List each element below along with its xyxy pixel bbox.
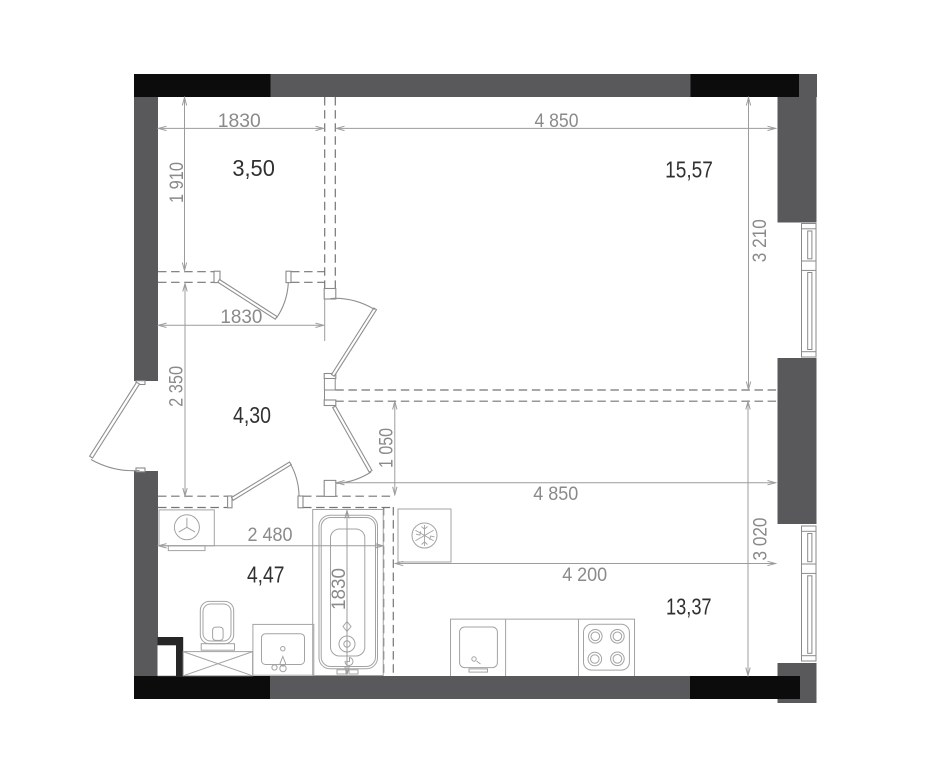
svg-text:13,37: 13,37: [666, 593, 712, 619]
svg-text:1830: 1830: [328, 568, 350, 610]
svg-text:15,57: 15,57: [665, 156, 713, 182]
svg-text:1830: 1830: [218, 110, 261, 132]
svg-text:4,30: 4,30: [233, 402, 271, 428]
svg-text:2 480: 2 480: [248, 524, 293, 546]
svg-text:2 350: 2 350: [166, 366, 188, 407]
svg-text:4 850: 4 850: [535, 110, 579, 132]
svg-text:3 020: 3 020: [749, 517, 771, 560]
svg-text:3,50: 3,50: [232, 155, 275, 181]
svg-text:1 910: 1 910: [166, 162, 188, 203]
svg-text:3 210: 3 210: [749, 219, 771, 262]
svg-text:4 850: 4 850: [533, 483, 578, 505]
svg-text:1830: 1830: [220, 306, 262, 328]
svg-text:4,47: 4,47: [247, 561, 285, 587]
svg-text:1 050: 1 050: [376, 428, 398, 468]
svg-text:4 200: 4 200: [562, 564, 607, 586]
